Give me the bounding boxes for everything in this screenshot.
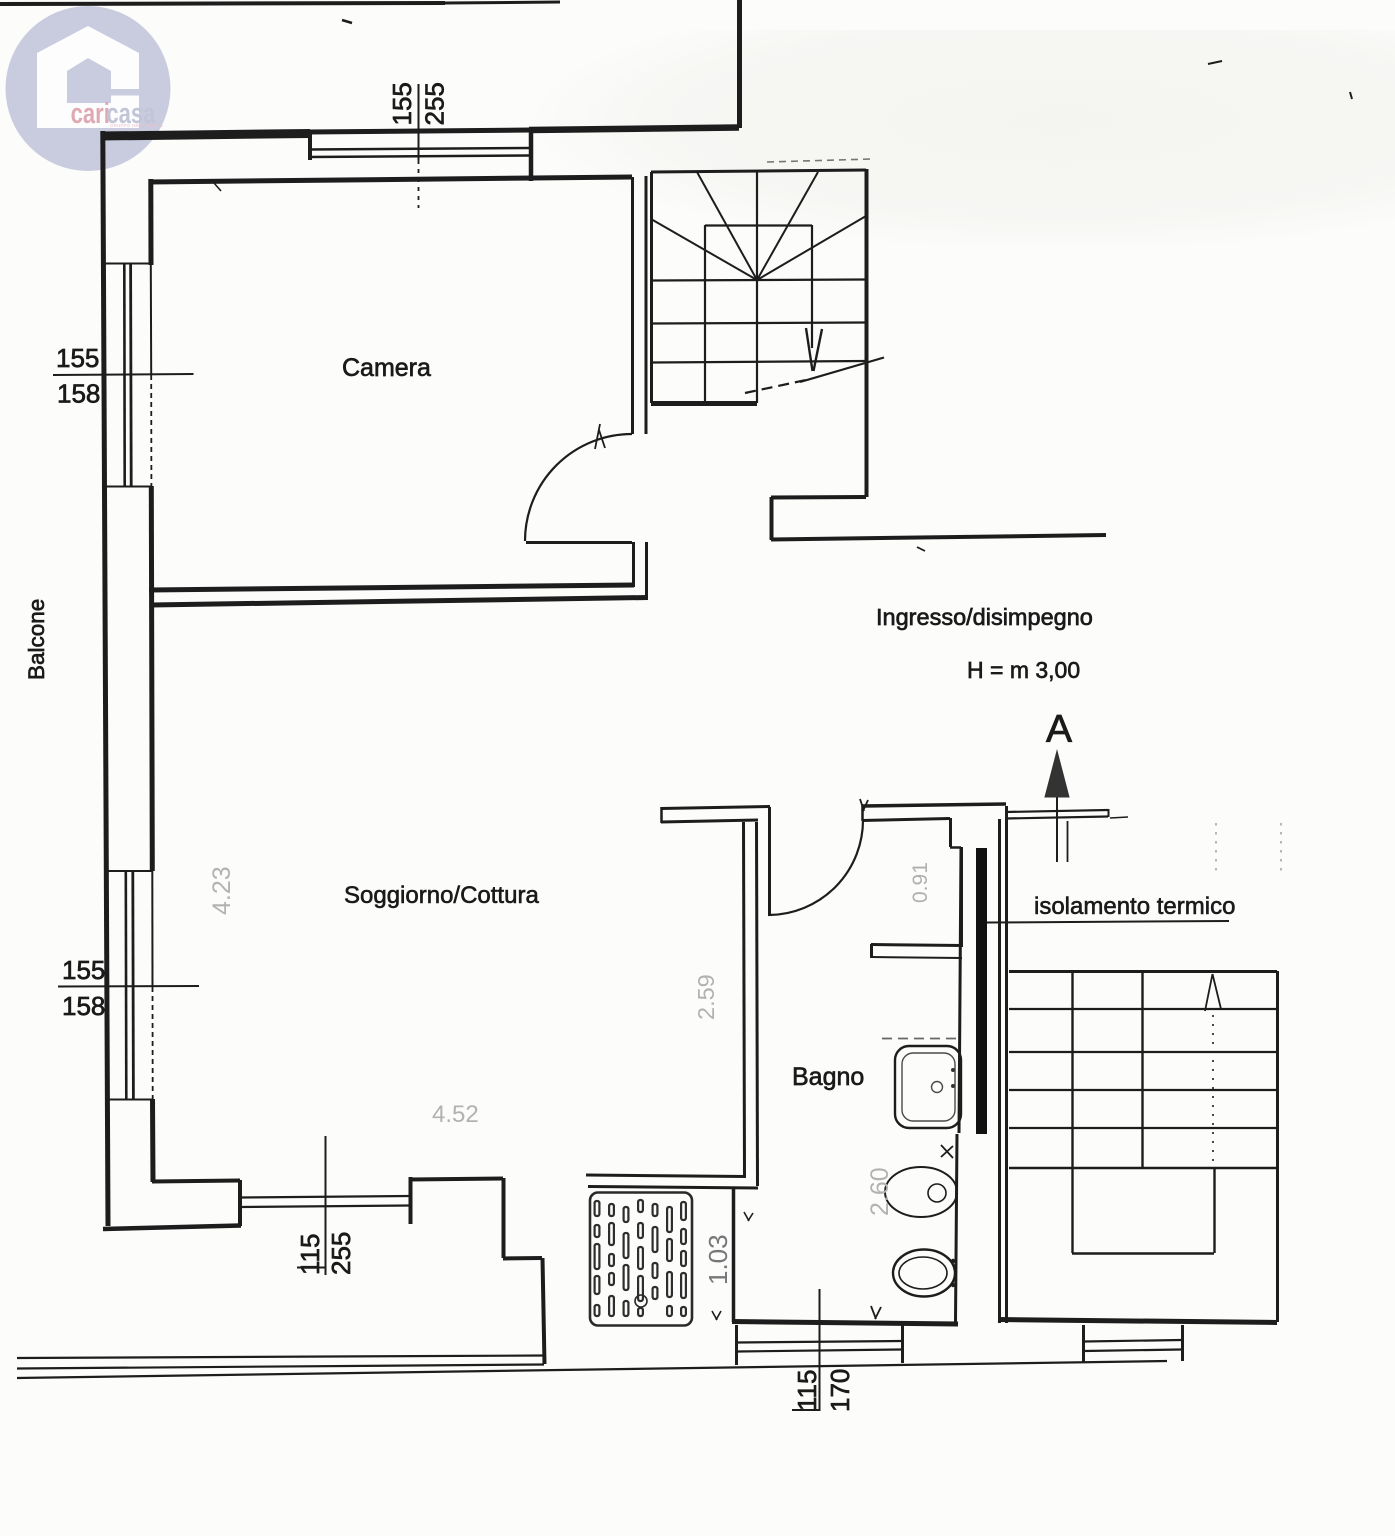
svg-text:GRUPPO IMMOBILIARE: GRUPPO IMMOBILIARE bbox=[110, 123, 163, 128]
svg-text:115: 115 bbox=[792, 1370, 822, 1411]
svg-text:155: 155 bbox=[56, 343, 99, 373]
svg-text:1.03: 1.03 bbox=[703, 1234, 733, 1285]
svg-text:4.52: 4.52 bbox=[432, 1101, 479, 1128]
svg-text:255: 255 bbox=[420, 82, 450, 125]
svg-text:Bagno: Bagno bbox=[792, 1063, 864, 1091]
svg-text:isolamento termico: isolamento termico bbox=[1034, 893, 1235, 920]
svg-text:H = m 3,00: H = m 3,00 bbox=[967, 657, 1080, 683]
svg-text:0.91: 0.91 bbox=[909, 862, 932, 903]
svg-text:158: 158 bbox=[57, 379, 100, 409]
svg-text:cari: cari bbox=[71, 98, 110, 130]
svg-text:170: 170 bbox=[825, 1369, 855, 1412]
svg-text:4.23: 4.23 bbox=[208, 866, 236, 915]
svg-text:2.59: 2.59 bbox=[693, 974, 719, 1020]
svg-text:2.60: 2.60 bbox=[866, 1167, 894, 1216]
svg-text:Ingresso/disimpegno: Ingresso/disimpegno bbox=[876, 604, 1093, 630]
svg-text:Camera: Camera bbox=[342, 354, 431, 382]
svg-text:255: 255 bbox=[326, 1232, 356, 1275]
svg-text:Balcone: Balcone bbox=[24, 599, 49, 680]
svg-text:Soggiorno/Cottura: Soggiorno/Cottura bbox=[344, 882, 539, 909]
svg-text:A: A bbox=[1046, 708, 1072, 751]
svg-text:155: 155 bbox=[387, 82, 417, 125]
svg-text:115: 115 bbox=[295, 1234, 325, 1275]
svg-text:155: 155 bbox=[62, 955, 105, 985]
svg-text:158: 158 bbox=[62, 991, 105, 1021]
